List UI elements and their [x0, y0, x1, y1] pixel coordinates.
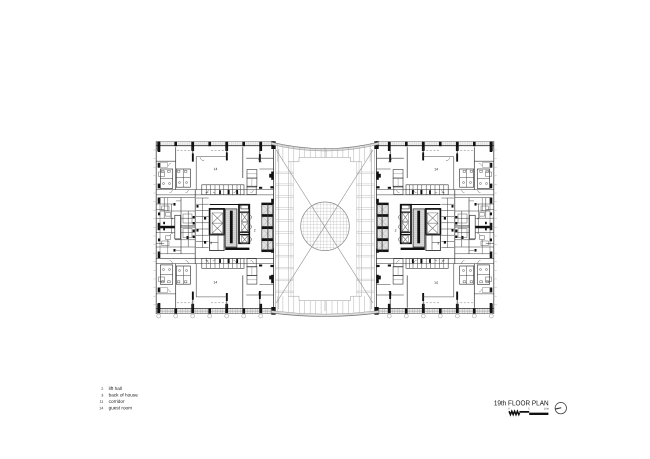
svg-text:14: 14 — [434, 167, 438, 171]
svg-text:back of house: back of house — [109, 392, 139, 397]
svg-text:14: 14 — [434, 281, 438, 285]
svg-text:14: 14 — [99, 406, 103, 410]
svg-text:guest room: guest room — [109, 405, 133, 410]
svg-text:11: 11 — [99, 400, 103, 404]
svg-text:14: 14 — [214, 167, 218, 171]
svg-text:10m: 10m — [544, 407, 549, 411]
svg-text:3: 3 — [210, 241, 212, 245]
svg-text:3: 3 — [101, 393, 103, 397]
svg-text:2: 2 — [101, 387, 103, 391]
svg-text:corridor: corridor — [109, 399, 125, 404]
svg-text:2: 2 — [254, 229, 256, 233]
svg-text:19th FLOOR PLAN: 19th FLOOR PLAN — [494, 399, 549, 407]
svg-text:3: 3 — [437, 241, 439, 245]
svg-text:lift hall: lift hall — [109, 386, 122, 391]
svg-text:14: 14 — [213, 280, 217, 284]
svg-text:2: 2 — [395, 229, 397, 233]
